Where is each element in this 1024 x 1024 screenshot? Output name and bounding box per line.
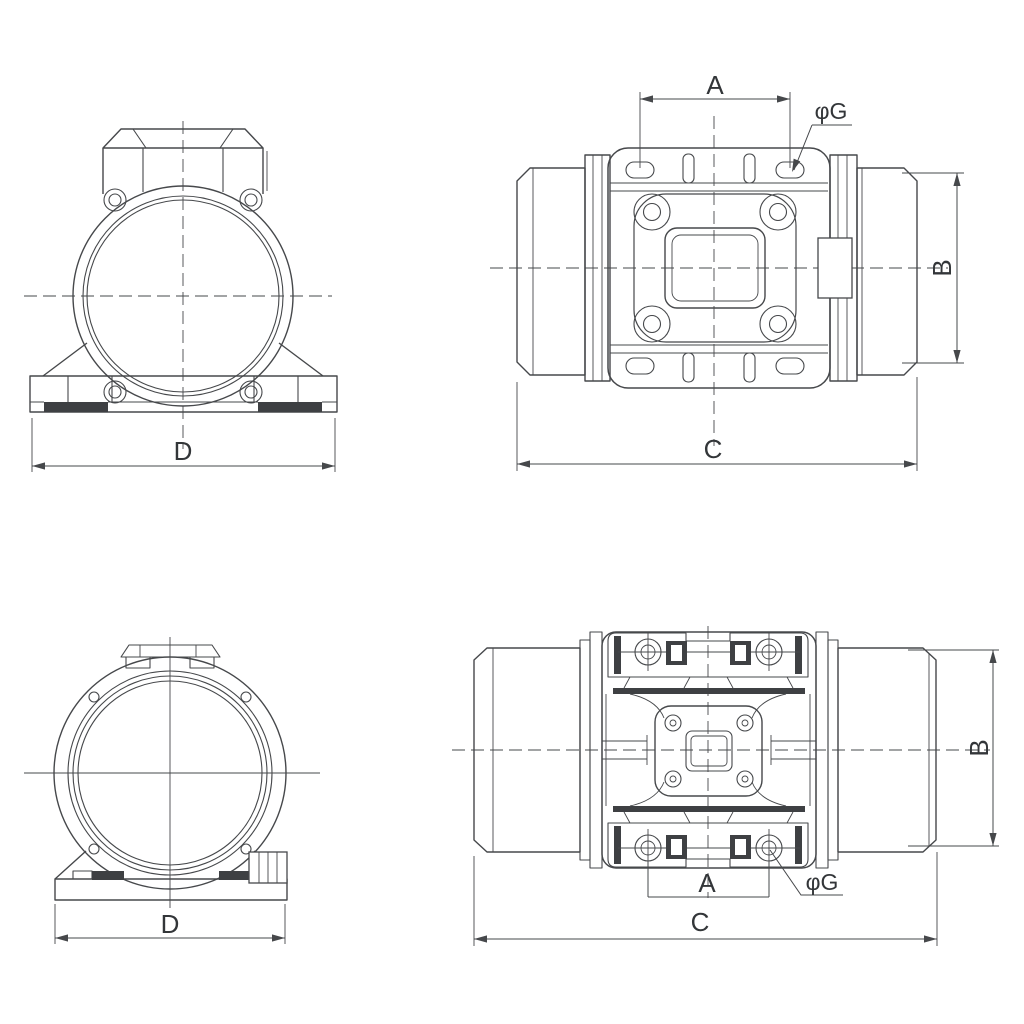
rubber-pad-left	[92, 871, 124, 880]
dim-label-c: C	[704, 434, 723, 464]
dimension-d: D	[32, 418, 335, 472]
dim-label-g: φG	[806, 869, 839, 895]
seal-bar-bottom	[613, 806, 805, 812]
dimension-g: φG	[770, 850, 843, 895]
dim-label-b: B	[964, 739, 994, 756]
dim-label-c: C	[691, 907, 710, 937]
centerlines	[490, 116, 948, 446]
technical-drawing: D	[0, 0, 1024, 1024]
dim-label-g: φG	[815, 98, 848, 124]
gusset-ticks-bottom	[624, 812, 793, 823]
dim-label-d: D	[161, 909, 180, 939]
dim-label-a: A	[706, 70, 724, 100]
dimension-c: C	[474, 852, 937, 946]
dim-label-a: A	[698, 868, 716, 898]
centerlines	[24, 121, 332, 449]
view-front-bottom-left: D	[24, 637, 320, 944]
terminal-block-side	[249, 852, 287, 883]
gusset-ticks-top	[624, 677, 793, 688]
end-cap-left	[517, 168, 585, 375]
dimension-g: φG	[789, 98, 852, 173]
dimension-a: A	[640, 70, 790, 168]
dimension-c: C	[517, 377, 917, 471]
rubber-pad-right	[258, 402, 322, 412]
dim-label-d: D	[174, 436, 193, 466]
bolt-boss-frame	[634, 194, 796, 342]
dimension-d: D	[55, 904, 285, 944]
center-assembly	[655, 706, 762, 796]
dimension-b: B	[908, 650, 999, 846]
centerlines	[452, 626, 990, 898]
gland-cover	[121, 645, 220, 668]
rubber-pad-right	[219, 871, 249, 880]
mounting-base	[30, 343, 337, 412]
view-bottom-right: B C A φG	[452, 626, 999, 946]
terminal-box	[103, 129, 267, 194]
end-cap-right	[857, 168, 917, 375]
dim-label-b: B	[927, 259, 957, 276]
seal-bar-top	[613, 688, 805, 694]
cable-entry-box	[818, 238, 852, 298]
drawing-canvas: D	[0, 0, 1024, 1024]
end-cap-left	[474, 648, 580, 852]
rubber-pad-left	[44, 402, 108, 412]
view-front-top-left: D	[24, 121, 337, 472]
base-step	[73, 871, 92, 879]
view-top-right: A φG B C	[490, 70, 964, 471]
